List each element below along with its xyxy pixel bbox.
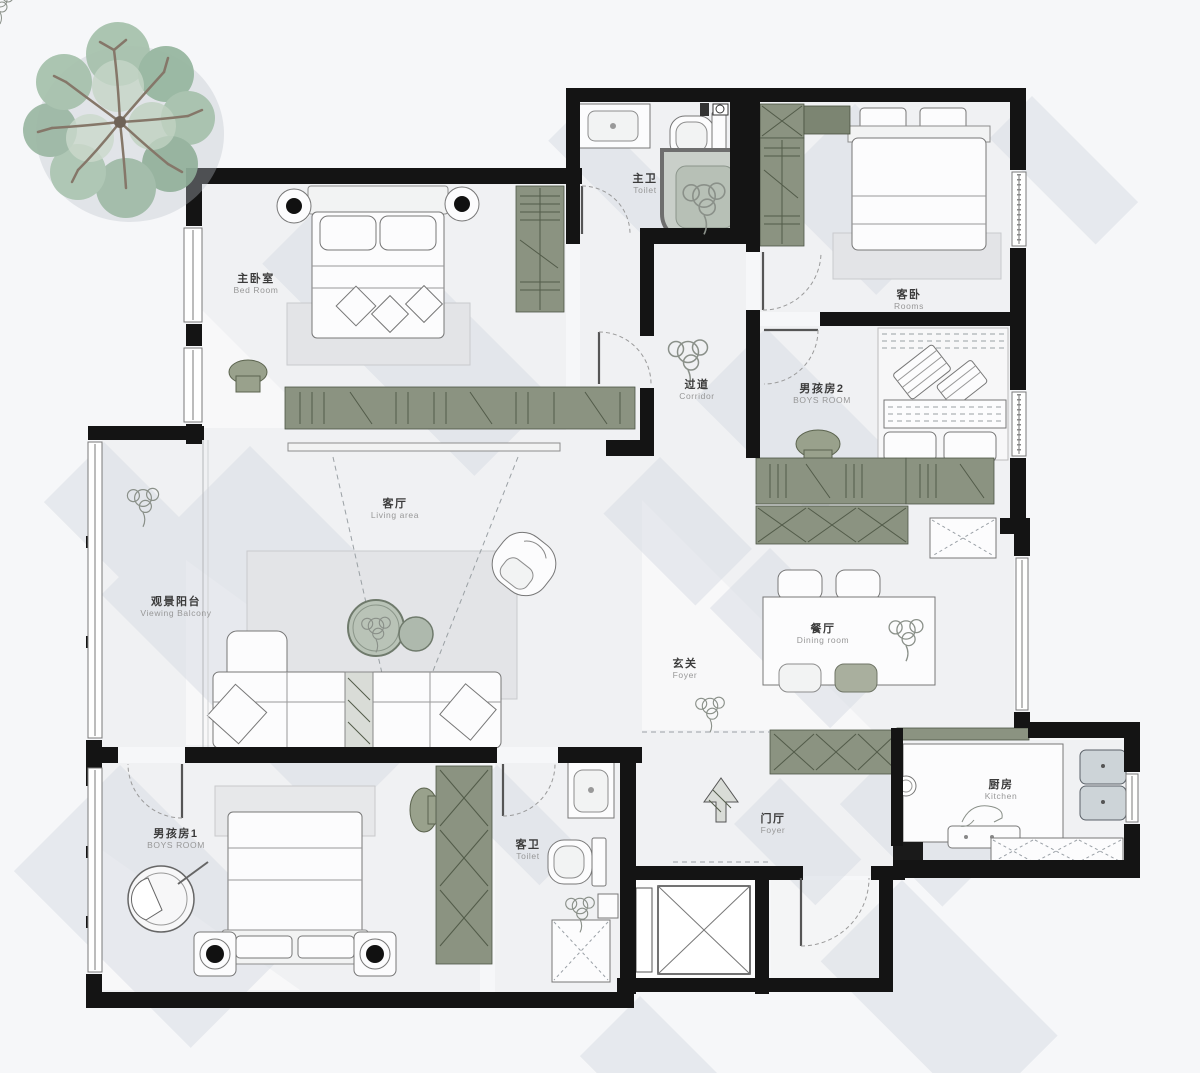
elevator-counterweight [636,888,652,972]
tree-icon [23,22,224,222]
kitchen-island [896,744,1063,848]
boys1-bed [222,812,368,964]
shoe-cabinet [770,730,900,774]
guest-bed [848,108,990,250]
boys1-nightstand [354,932,396,976]
toilet2-cabinet [598,894,618,918]
dining-chair [836,570,880,600]
toilet2-toilet [548,838,606,886]
floor-plan-canvas [0,0,1200,1073]
boys1-nightstand [194,932,236,976]
bath-valve [700,103,728,116]
dining-chair [778,570,822,600]
dining-chair [779,664,821,692]
kitchen-top-cabinet [897,728,1029,740]
master-nightstand-left [277,189,311,223]
guest-shelf [804,106,850,134]
master-wardrobe [516,186,564,312]
toilet2-sink [568,762,614,818]
master-bed [308,186,448,338]
floor-plan: 主卧室 Bed Room 主卫 Toilet 客卧 Rooms 男孩房2 BOY… [0,0,1200,1073]
master-nightstand-right [445,187,479,221]
boys1-wardrobe [436,766,492,964]
elevator [631,880,755,978]
bath-sink [578,104,650,148]
dining-chair [835,664,877,692]
